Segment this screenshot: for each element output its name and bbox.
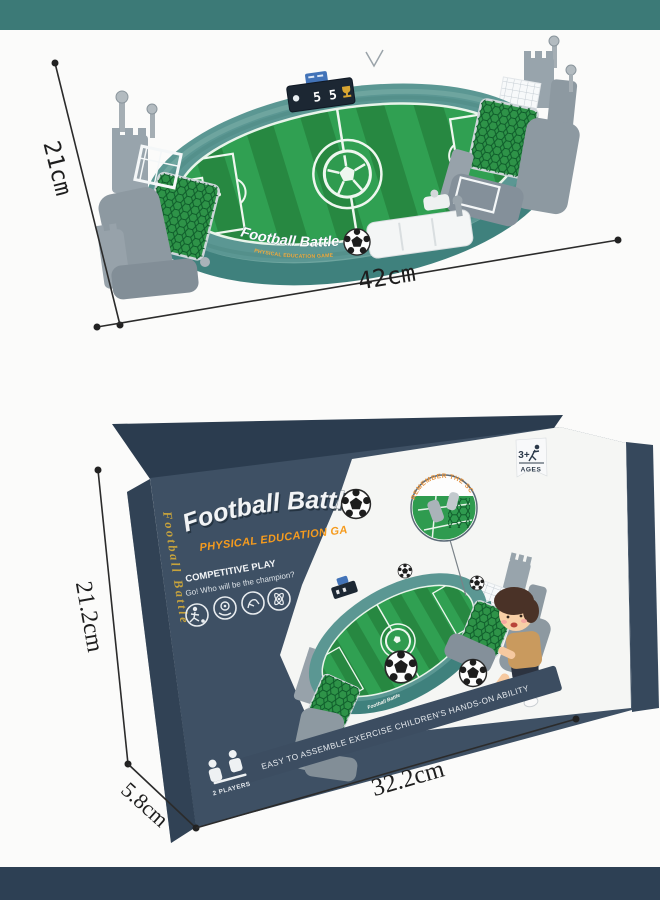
scene: 5 5 (0, 0, 660, 900)
bottom-navy-bar (0, 867, 660, 900)
soccer-ball-icon (470, 576, 484, 590)
title-soccer-ball-icon (342, 489, 371, 518)
soccer-ball-icon (385, 651, 417, 683)
rim-soccer-ball-icon (344, 229, 370, 255)
soccer-ball-icon (398, 564, 412, 578)
age-badge-label: AGES (521, 467, 542, 474)
product-listing-image: 5 5 (0, 0, 660, 900)
age-badge: 3+ AGES (516, 438, 547, 477)
age-badge-age: 3+ (518, 450, 530, 461)
top-teal-bar (0, 0, 660, 30)
soccer-ball-icon (460, 659, 487, 686)
